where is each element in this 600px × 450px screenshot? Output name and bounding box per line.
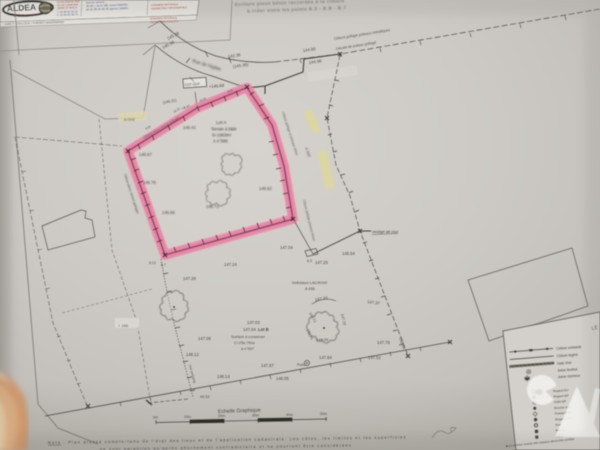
- svg-text:147.87: 147.87: [261, 363, 274, 368]
- svg-text:A Guy: A Guy: [124, 116, 135, 122]
- svg-text:147.04: 147.04: [243, 327, 256, 332]
- svg-text:147.25: 147.25: [315, 260, 328, 265]
- svg-text:146.62: 146.62: [259, 186, 272, 191]
- svg-text:147.52: 147.52: [368, 355, 381, 360]
- svg-text:146.67: 146.67: [139, 152, 152, 157]
- svg-text:S=1563m²: S=1563m²: [212, 133, 232, 138]
- svg-text:C=25a 76ca: C=25a 76ca: [234, 341, 255, 345]
- svg-text:à n°597: à n°597: [241, 347, 254, 351]
- svg-text:147.03: 147.03: [247, 320, 260, 325]
- svg-text:30m: 30m: [252, 414, 259, 418]
- svg-text:147.84: 147.84: [319, 355, 332, 360]
- svg-text:0m: 0m: [153, 416, 158, 420]
- svg-text:50m: 50m: [320, 412, 327, 416]
- svg-text:148.14: 148.14: [217, 374, 230, 379]
- svg-text:45.53: 45.53: [200, 395, 210, 399]
- svg-text:+: +: [210, 204, 212, 208]
- svg-text:148.05: 148.05: [316, 337, 329, 342]
- svg-text:146.66: 146.66: [162, 210, 175, 215]
- svg-text:Puits: Puits: [297, 363, 305, 367]
- svg-text:148.05: 148.05: [276, 376, 289, 381]
- svg-text:148.12: 148.12: [186, 352, 199, 357]
- svg-text:Indivision LACROIX: Indivision LACROIX: [292, 280, 328, 285]
- svg-text:Lot B: Lot B: [258, 327, 269, 332]
- svg-text:147.28: 147.28: [183, 276, 196, 281]
- svg-text:147.78: 147.78: [377, 340, 390, 345]
- svg-text:Terrain à bâtir: Terrain à bâtir: [211, 127, 237, 132]
- svg-text:20m: 20m: [218, 414, 225, 418]
- svg-text:146.41: 146.41: [183, 125, 196, 130]
- svg-text:147.08: 147.08: [198, 336, 211, 341]
- svg-text:40m: 40m: [286, 413, 293, 417]
- svg-text:146.94: 146.94: [342, 251, 355, 256]
- svg-text:Surface à conserver: Surface à conserver: [231, 335, 266, 339]
- svg-text:vestige de mur: vestige de mur: [372, 229, 399, 234]
- svg-text:146.78: 146.78: [143, 180, 156, 185]
- svg-text:147.24: 147.24: [224, 262, 237, 267]
- svg-text:Grille EP: Grille EP: [554, 399, 566, 404]
- svg-text:10m: 10m: [184, 415, 191, 419]
- svg-text:8.13: 8.13: [149, 261, 156, 265]
- svg-text:A 496: A 496: [305, 287, 315, 291]
- svg-text:+ 166: + 166: [118, 323, 129, 328]
- svg-text:8.3: 8.3: [307, 259, 312, 263]
- svg-text:Lot A: Lot A: [216, 120, 227, 125]
- svg-text:147.04: 147.04: [280, 245, 293, 250]
- svg-text:A n°596: A n°596: [213, 139, 228, 144]
